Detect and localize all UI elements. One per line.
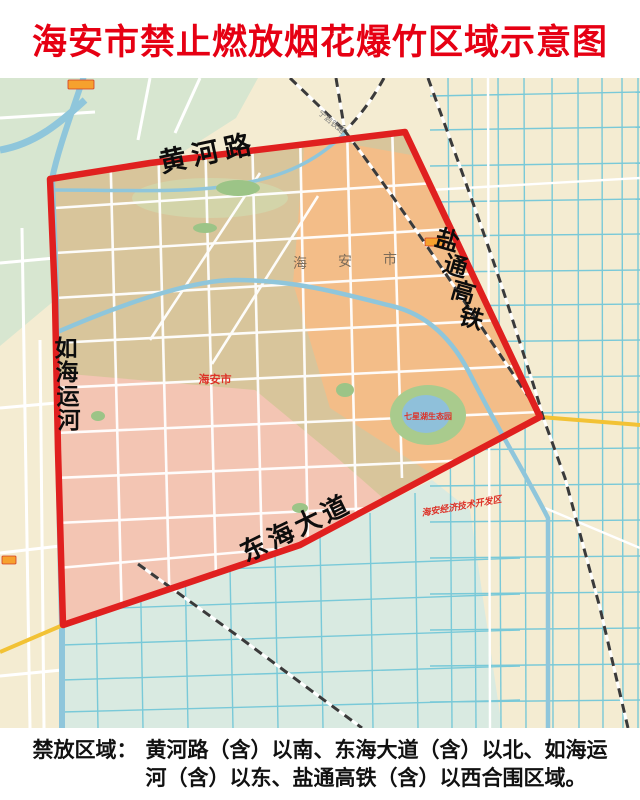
label-haian-city: 海安市 — [199, 372, 232, 386]
svg-text:海: 海 — [56, 359, 79, 386]
svg-text:海: 海 — [293, 256, 307, 272]
map-svg: 黄河路 东海大道 盐 通 高 铁 如 海 运 河 海 安 市 — [0, 78, 640, 728]
fireworks-ban-map-page: 海安市禁止燃放烟花爆竹区域示意图 — [0, 0, 640, 800]
note-text: 黄河路（含）以南、东海大道（含）以北、如海运河（含）以东、盐通高铁（含）以西合围… — [146, 736, 608, 792]
park-small-3 — [91, 411, 105, 421]
park-north — [216, 180, 260, 196]
label-qixinghu-park: 七星湖生态园 — [404, 411, 452, 421]
label-ruhai-canal: 如 海 运 河 — [55, 336, 81, 434]
park-small-2 — [336, 383, 354, 397]
svg-text:河: 河 — [58, 408, 81, 434]
park-small-1 — [193, 223, 217, 233]
svg-text:运: 运 — [57, 384, 80, 410]
map-image: 黄河路 东海大道 盐 通 高 铁 如 海 运 河 海 安 市 — [0, 78, 640, 728]
note-label: 禁放区域： — [33, 736, 138, 764]
svg-text:安: 安 — [338, 254, 352, 270]
page-title-bar: 海安市禁止燃放烟花爆竹区域示意图 — [0, 0, 640, 78]
svg-text:市: 市 — [383, 251, 397, 268]
svg-text:如: 如 — [55, 336, 78, 362]
page-title: 海安市禁止燃放烟花爆竹区域示意图 — [32, 14, 608, 65]
ban-zone-note: 禁放区域： 黄河路（含）以南、东海大道（含）以北、如海运河（含）以东、盐通高铁（… — [0, 728, 640, 800]
